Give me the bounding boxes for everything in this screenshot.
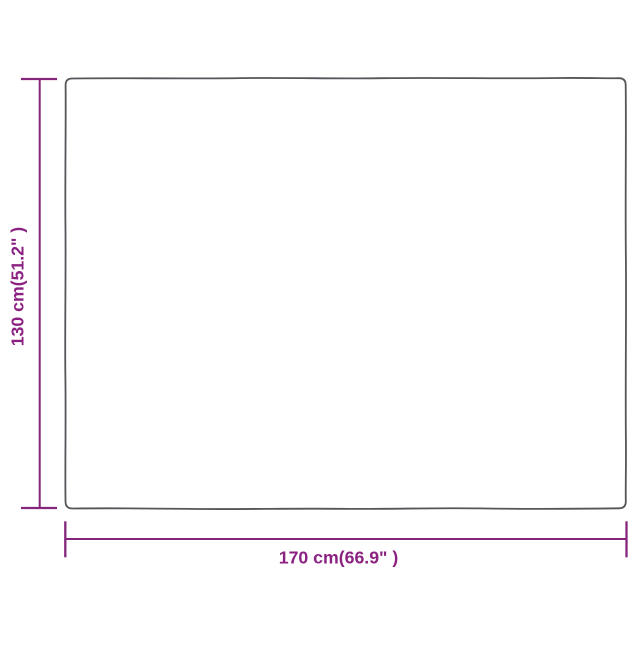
svg-text:170 cm(66.9" ): 170 cm(66.9" ): [279, 547, 399, 567]
svg-text:130 cm(51.2" ): 130 cm(51.2" ): [7, 227, 27, 347]
